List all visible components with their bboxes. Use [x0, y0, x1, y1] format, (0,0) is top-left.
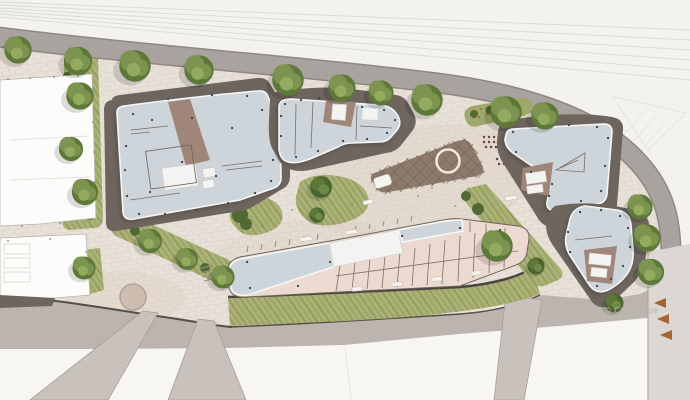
roof-room	[591, 267, 608, 278]
circle-plaza	[120, 284, 146, 310]
site-plan-rendering: © CG Gruppe	[0, 0, 690, 400]
skylight	[331, 103, 346, 120]
shrub	[240, 218, 252, 230]
courtyard-deck	[162, 164, 199, 191]
balcony	[392, 282, 402, 287]
balcony	[352, 287, 362, 292]
roof-room	[202, 179, 214, 188]
roof-terrace	[588, 253, 611, 266]
roof-room	[203, 167, 216, 178]
roof-room	[362, 108, 379, 121]
shrub	[472, 203, 484, 215]
watermark: © CG Gruppe	[605, 306, 659, 315]
balcony	[432, 276, 442, 281]
site-plan-canvas: © CG Gruppe	[0, 0, 690, 400]
shrub	[461, 191, 471, 201]
